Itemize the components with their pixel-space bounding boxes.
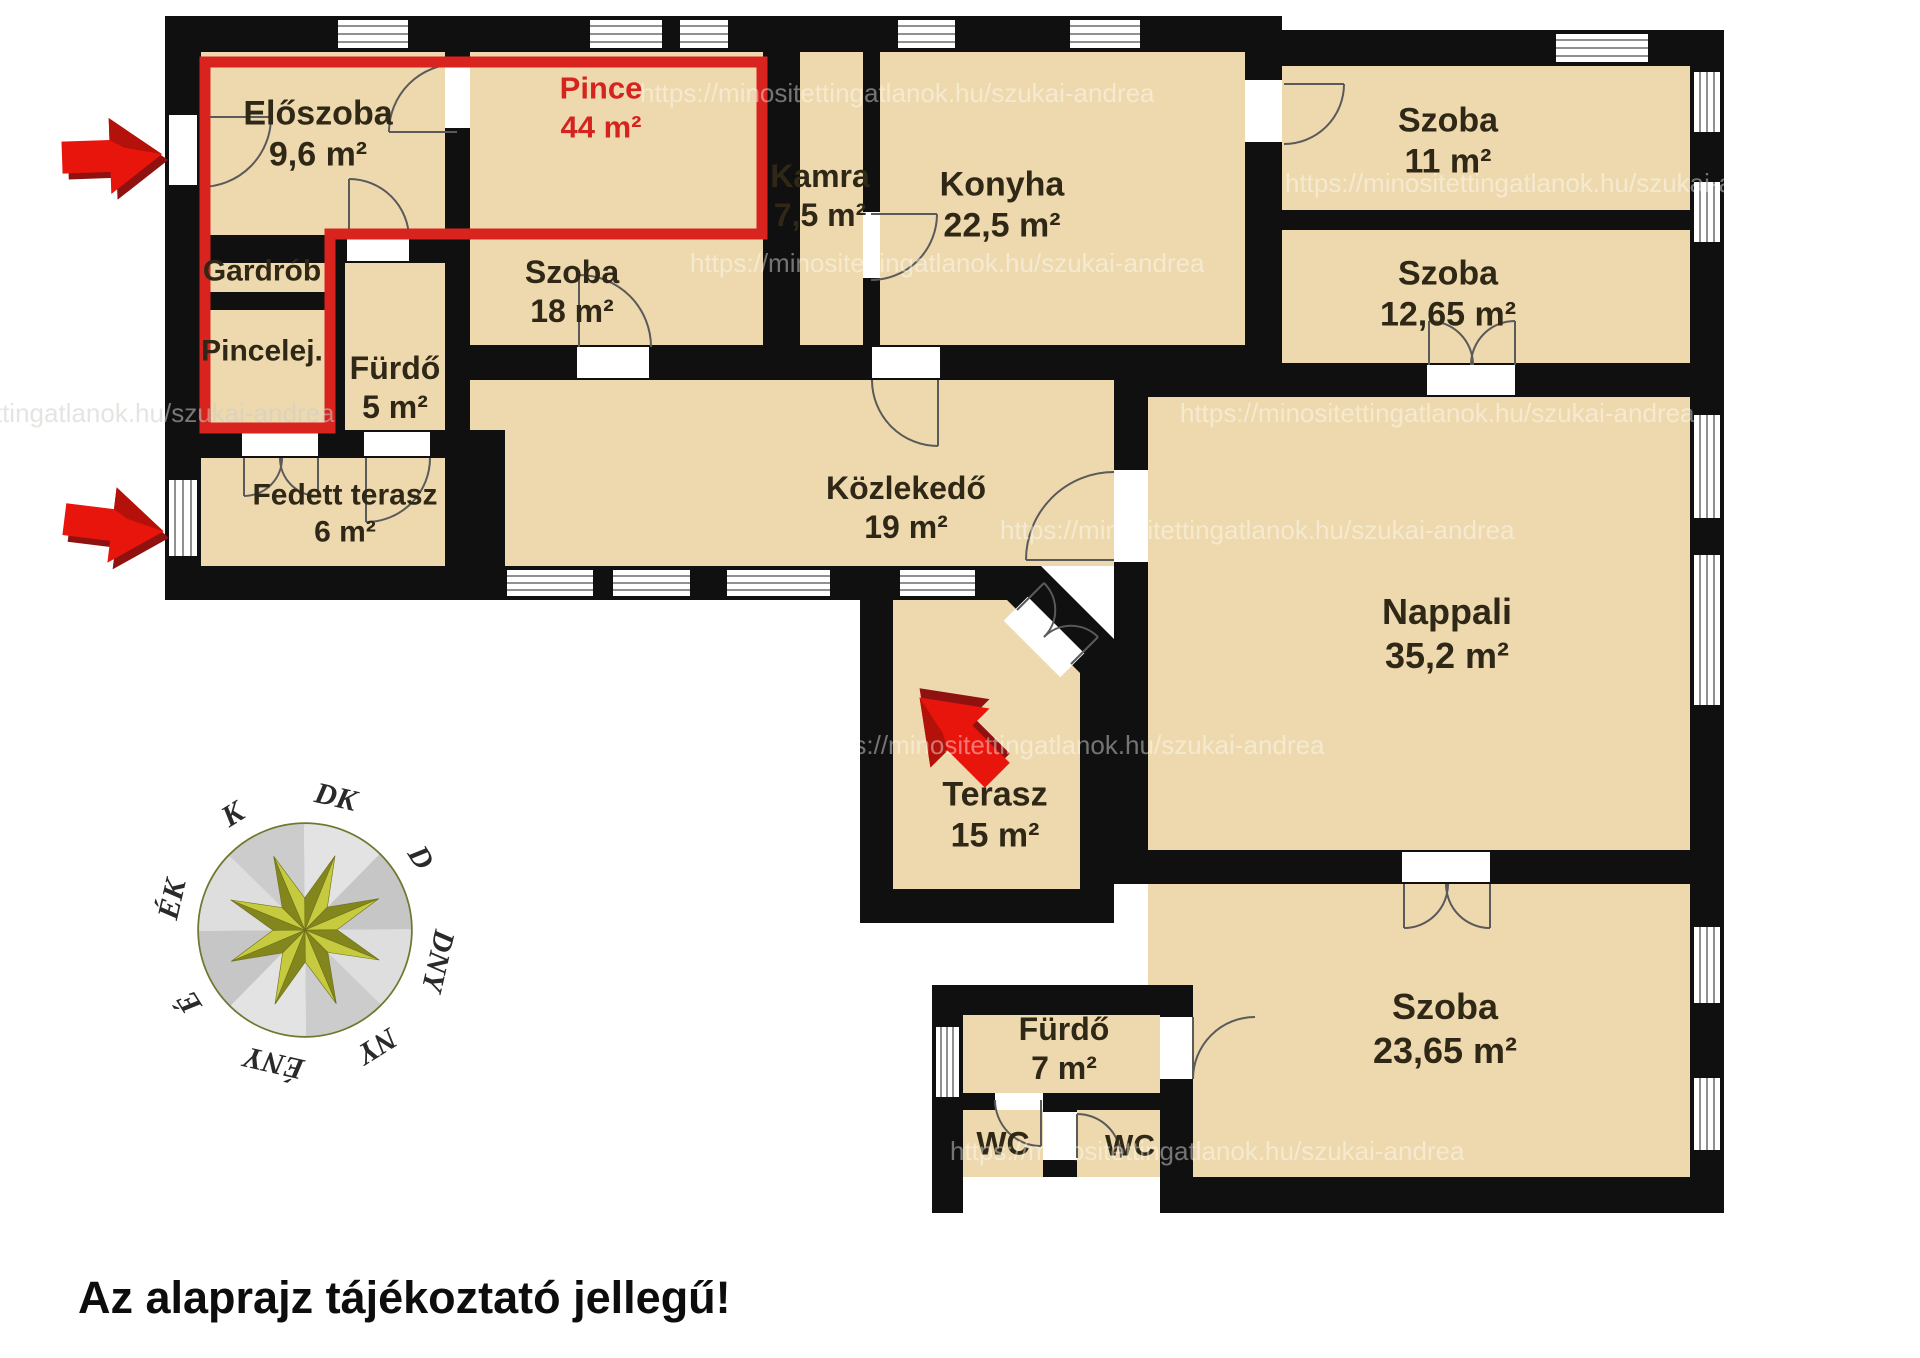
room-label-terasz: Terasz15 m²: [942, 775, 1047, 858]
compass-label-d: D: [400, 839, 440, 876]
room-shape-kozlekedo: [445, 380, 1148, 566]
compass-label-dk: DK: [311, 776, 362, 818]
room-label-kamra: Kamra7,5 m²: [770, 157, 870, 235]
room-label-szoba1265: Szoba12,65 m²: [1380, 254, 1516, 337]
room-label-wc1: WC: [976, 1124, 1029, 1163]
room-label-szoba2365: Szoba23,65 m²: [1373, 985, 1517, 1073]
compass-rose: DK D DNY NY ÉNY É ÉK K: [151, 776, 461, 1086]
floor-plan: DK D DNY NY ÉNY É ÉK K Előszoba9,6 m² Ga…: [0, 0, 1920, 1358]
room-label-konyha: Konyha22,5 m²: [940, 165, 1065, 248]
room-label-fedett-terasz: Fedett terasz6 m²: [252, 477, 437, 550]
room-label-furdo5: Fürdő5 m²: [350, 349, 441, 427]
disclaimer-text: Az alaprajz tájékoztató jellegű!: [78, 1272, 731, 1324]
room-label-nappali: Nappali35,2 m²: [1382, 590, 1512, 678]
red-arrow-icon: [59, 481, 174, 575]
room-label-furdo7: Fürdő7 m²: [1019, 1010, 1110, 1088]
compass-label-dny: DNY: [414, 926, 461, 997]
compass-label-k: K: [215, 794, 252, 834]
room-label-gardrob: Gardrób: [203, 254, 321, 291]
compass-label-eny: ÉNY: [239, 1040, 308, 1086]
room-label-pincelej: Pincelej.: [201, 334, 323, 371]
room-label-wc2: WC: [1105, 1129, 1155, 1166]
red-arrow-icon: [61, 116, 170, 202]
compass-label-ny: NY: [349, 1021, 404, 1072]
room-label-szoba18: Szoba18 m²: [525, 253, 619, 331]
room-label-eloszoba: Előszoba9,6 m²: [243, 94, 392, 177]
compass-label-e: É: [170, 985, 209, 1020]
room-label-szoba11: Szoba11 m²: [1398, 101, 1498, 184]
pince-label: Pince44 m²: [560, 69, 643, 147]
room-label-kozlekedo: Közlekedő19 m²: [826, 469, 986, 547]
compass-label-ek: ÉK: [151, 874, 193, 923]
